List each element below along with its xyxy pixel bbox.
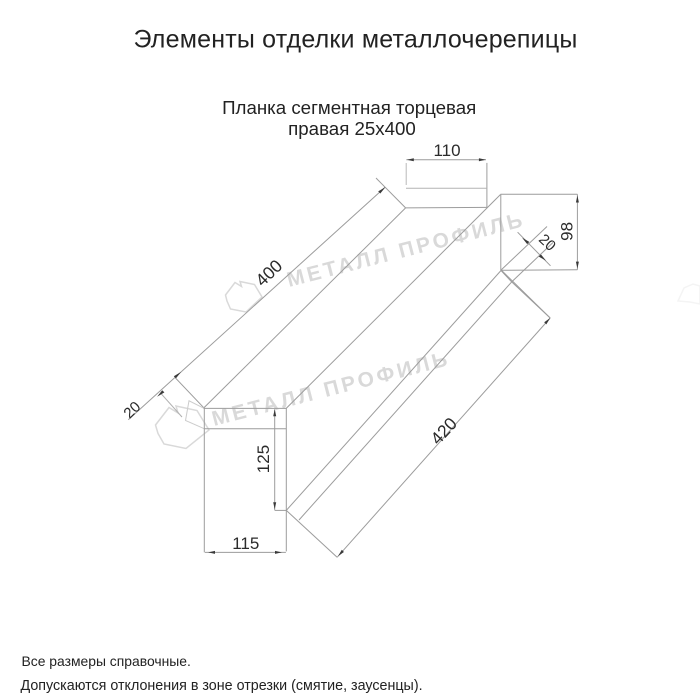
svg-text:Элементы отделки металлочерепи: Элементы отделки металлочерепицы [133,25,577,53]
svg-text:Все размеры справочные.: Все размеры справочные. [22,653,191,669]
svg-text:110: 110 [433,141,460,160]
svg-text:20: 20 [120,398,144,422]
svg-text:Допускаются отклонения в зоне: Допускаются отклонения в зоне отрезки (с… [21,678,423,694]
svg-text:правая 25х400: правая 25х400 [288,118,416,139]
svg-text:115: 115 [232,534,259,553]
svg-text:МЕТАЛЛ ПРОФИЛЬ: МЕТАЛЛ ПРОФИЛЬ [284,208,527,292]
svg-text:Планка сегментная торцевая: Планка сегментная торцевая [222,97,476,118]
svg-text:125: 125 [254,445,273,473]
svg-text:400: 400 [251,255,286,290]
svg-text:420: 420 [426,413,461,448]
svg-text:98: 98 [558,222,577,241]
